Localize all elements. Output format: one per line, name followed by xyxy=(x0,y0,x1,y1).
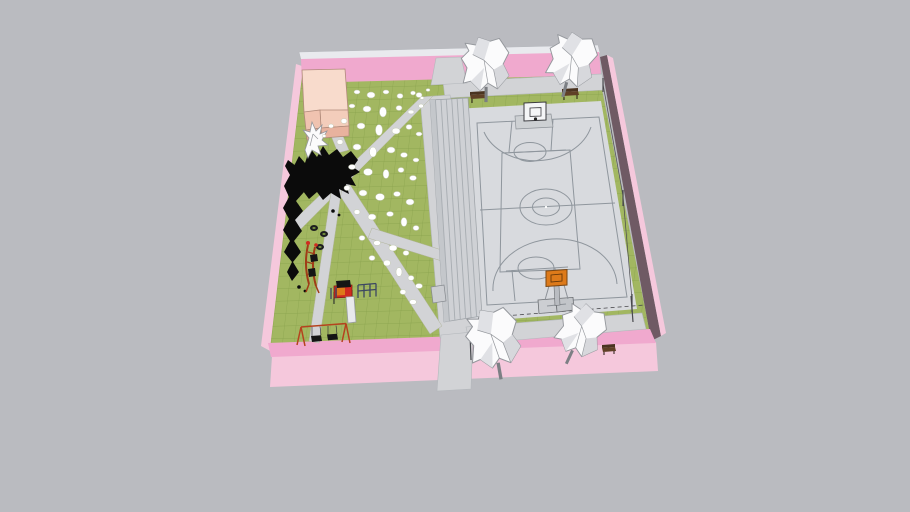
black-speck xyxy=(338,214,341,217)
swing-seat xyxy=(327,334,338,341)
park-3d-render xyxy=(0,0,910,512)
slide-tower-panel xyxy=(336,280,351,288)
bleacher-stair-box xyxy=(431,285,446,303)
service-building xyxy=(302,69,349,140)
slide-tower-box xyxy=(337,288,345,296)
hoop-post xyxy=(554,286,560,306)
north-entrance xyxy=(431,57,467,85)
slide-chute xyxy=(346,297,356,324)
south-entrance xyxy=(437,332,473,391)
model-viewport[interactable] xyxy=(0,0,910,512)
rim xyxy=(534,117,537,120)
backboard-orange xyxy=(546,270,567,287)
center-dot xyxy=(545,206,547,208)
black-speck xyxy=(297,285,301,289)
swing-seat xyxy=(311,335,322,342)
building-roof-main xyxy=(302,69,348,112)
black-speck xyxy=(331,209,335,213)
